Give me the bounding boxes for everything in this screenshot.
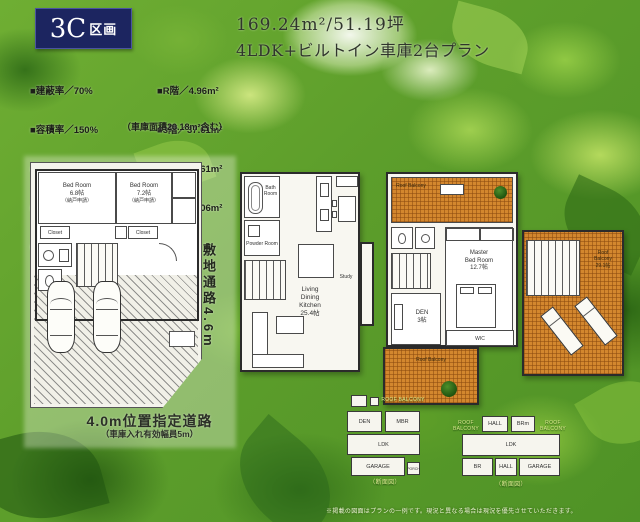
- bedroom-2-sub: （納戸申請）: [117, 198, 171, 204]
- section-b-caption: （断面図）: [452, 482, 570, 489]
- headline-area: 169.24m²/51.19坪: [236, 10, 536, 35]
- dining-chair-icon: [332, 200, 337, 207]
- bedroom-2: Bed Room 7.2帖 （納戸申請）: [116, 172, 172, 224]
- garage-area-note: （車庫面積20.18m²含む）: [122, 120, 228, 133]
- bedroom-2-name: Bed Room: [117, 183, 171, 191]
- spec-floor-area-ratio: ■容積率／150%: [30, 124, 124, 137]
- stairs-roof: [526, 240, 580, 296]
- section-b-right-label: ROOF BALCONY: [538, 420, 568, 432]
- washbasin-icon: [421, 234, 430, 243]
- footer-disclaimer: ※掲載の図面はプランの一例です。現況と異なる場合は現況を優先させていただきます。: [326, 506, 638, 515]
- den-name: DEN: [404, 310, 440, 318]
- roof-balcony-top-label: Roof Balcony: [396, 183, 426, 189]
- porch-step: [169, 331, 195, 347]
- closet-2: Closet: [128, 226, 158, 239]
- stairwell-void: [298, 244, 334, 278]
- wic-closet: WIC: [446, 330, 514, 346]
- spec-roof-floor: ■R階／4.96m²: [157, 85, 222, 98]
- section-b-brm: BRm: [517, 421, 529, 427]
- powder-room-label: Powder Room: [245, 241, 279, 247]
- bathtub-icon: [248, 182, 263, 214]
- lounge-chair-icon: [574, 296, 617, 345]
- bedroom-1: Bed Room 6.8帖 （納戸申請）: [38, 172, 116, 224]
- kitchen-counter: [316, 176, 332, 232]
- bedroom-1-size: 6.8帖: [39, 191, 115, 199]
- closet-icon: [480, 228, 514, 241]
- plant-icon: [441, 381, 457, 397]
- section-a-porch: PORCH: [407, 467, 420, 471]
- section-b-ldk: LDK: [506, 442, 517, 448]
- washbasin-icon: [43, 250, 54, 261]
- closet-icon: [446, 228, 480, 241]
- floor-plan-3f: Roof Balcony DEN 3帖 Master Bed Ro: [386, 172, 518, 347]
- sofa-icon: [252, 312, 268, 356]
- lounge-chair-icon: [540, 306, 583, 355]
- plant-icon: [494, 186, 507, 199]
- roof-floor-plan: Roof Balcony 29.1帖: [522, 230, 624, 376]
- roof-balcony-size: 29.1帖: [584, 263, 622, 269]
- section-a-den: DEN: [359, 419, 371, 425]
- washer-icon: [59, 249, 69, 262]
- section-b-left-label: ROOF BALCONY: [452, 420, 480, 432]
- bath-room-label: Bath Room: [262, 185, 279, 198]
- entry-mat: [115, 226, 127, 239]
- dining-table-icon: [338, 196, 356, 222]
- section-b-hall2: HALL: [499, 464, 513, 470]
- dining-chair-icon: [332, 211, 337, 218]
- bench-icon: [440, 184, 464, 195]
- roof-balcony-bottom-label: Roof Balcony: [385, 357, 477, 363]
- site-plan-1f: Bed Room 6.8帖 （納戸申請） Bed Room 7.2帖 （納戸申請…: [30, 162, 202, 408]
- leaf-shape: [574, 364, 640, 460]
- den-room: DEN 3帖: [391, 293, 441, 345]
- desk-icon: [394, 304, 403, 330]
- master-bedroom: Master Bed Room 12.7帖 WIC: [445, 227, 513, 345]
- section-a-caption: （断面図）: [343, 480, 427, 487]
- stove-icon: [320, 209, 329, 221]
- lot-number-text: 3C: [50, 14, 86, 44]
- section-b-garage: GARAGE: [528, 464, 552, 470]
- coffee-table-icon: [276, 316, 304, 334]
- floor-plan-2f: Bath Room Powder Room Study Living Dinin…: [240, 172, 360, 372]
- wic-label: WIC: [447, 336, 513, 342]
- study-nook: [360, 242, 374, 326]
- bedroom-1-sub: （納戸申請）: [39, 198, 115, 204]
- flyer-background: 3C 区画 169.24m²/51.19坪 4LDK+ビルトイン車庫2台プラン …: [0, 0, 640, 522]
- master-size: 12.7帖: [446, 265, 512, 273]
- section-b-br: BR: [474, 464, 482, 470]
- bed-icon: [456, 284, 496, 328]
- section-a-roof-label: ROOF BALCONY: [381, 397, 425, 403]
- site-passage-label: 敷地通路4.6m: [199, 243, 218, 349]
- car-icon: [93, 281, 121, 353]
- spec-coverage-ratio: ■建蔽率／70%: [30, 85, 124, 98]
- sofa-icon: [252, 354, 304, 368]
- powder-room: Powder Room: [244, 220, 280, 256]
- ldk-label-2: Dining: [282, 294, 338, 302]
- car-icon: [47, 281, 75, 353]
- stairs-2f: [244, 260, 286, 300]
- closet-1: Closet: [40, 226, 70, 239]
- master-label-2: Bed Room: [446, 258, 512, 266]
- lot-number-suffix: 区画: [89, 19, 117, 38]
- section-diagram-a: ROOF BALCONY DEN MBR LDK GARAGE PORCH （断…: [343, 393, 427, 493]
- side-closet: [172, 198, 196, 224]
- bath-room: Bath Room: [244, 176, 280, 218]
- sink-icon: [320, 183, 329, 197]
- section-a-hatchbox: [370, 397, 379, 406]
- section-a-mbr: MBR: [396, 419, 408, 425]
- bedroom-1-name: Bed Room: [39, 183, 115, 191]
- closet-1-label: Closet: [41, 230, 69, 236]
- vanity-icon: [248, 225, 260, 237]
- study-label: Study: [334, 274, 358, 280]
- section-a-ldk: LDK: [378, 442, 389, 448]
- pillow-icon: [478, 287, 492, 294]
- lavatory-room: [38, 243, 72, 267]
- cupboard: [336, 176, 358, 187]
- section-a-roofbox: [351, 395, 367, 407]
- bedroom-2-size: 7.2帖: [117, 191, 171, 199]
- lot-number-badge: 3C 区画: [35, 8, 132, 49]
- toilet-icon: [398, 233, 406, 244]
- section-b-hall1: HALL: [488, 421, 502, 427]
- road-note: （車庫入れ有効幅員5m）: [62, 428, 237, 440]
- basin-room-3f: [415, 227, 435, 249]
- roof-balcony-top: Roof Balcony: [391, 177, 513, 223]
- pillow-icon: [460, 287, 474, 294]
- plan-headline: 169.24m²/51.19坪 4LDK+ビルトイン車庫2台プラン: [236, 10, 536, 61]
- closet-2-label: Closet: [129, 230, 157, 236]
- stairs-3f: [391, 253, 431, 289]
- master-label-1: Master: [446, 250, 512, 258]
- headline-plan-type: 4LDK+ビルトイン車庫2台プラン: [236, 37, 536, 61]
- ldk-label-1: Living: [282, 286, 338, 294]
- den-size: 3帖: [404, 318, 440, 326]
- side-closet: [172, 172, 196, 198]
- section-diagram-b: ROOF BALCONY HALL BRm ROOF BALCONY LDK B…: [452, 416, 570, 502]
- section-a-garage: GARAGE: [366, 464, 390, 470]
- toilet-room-3f: [391, 227, 413, 249]
